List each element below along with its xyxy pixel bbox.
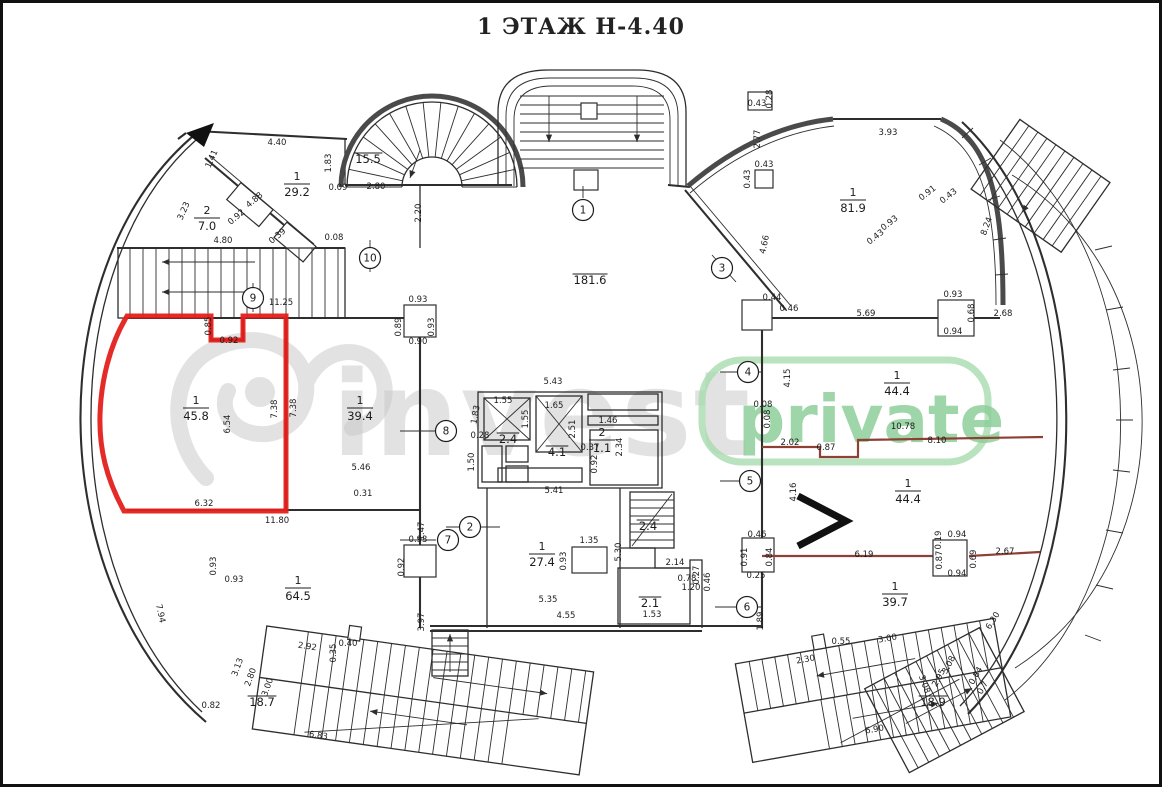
dimension-label: 0.91 (740, 548, 750, 567)
dimension-label: 0.46 (703, 573, 713, 592)
dimension-label: 8.10 (928, 436, 947, 446)
svg-text:7.0: 7.0 (198, 219, 216, 233)
axis-marker: 3 (712, 258, 733, 279)
dimension-label: 0.85 (204, 317, 214, 336)
dimension-label: 7.38 (270, 400, 280, 419)
dimension-label: 5.41 (545, 486, 564, 496)
svg-text:1: 1 (892, 580, 899, 593)
svg-text:64.5: 64.5 (285, 589, 311, 603)
axis-marker: 1 (573, 200, 594, 221)
svg-text:27.4: 27.4 (529, 555, 555, 569)
svg-text:2: 2 (599, 426, 606, 439)
dimension-label: 0.43 (748, 99, 767, 109)
svg-text:18.7: 18.7 (249, 695, 275, 709)
room-label: 181.6 (573, 273, 608, 287)
dimension-label: 1.89 (756, 612, 766, 631)
dimension-label: 4.55 (557, 611, 576, 621)
svg-text:1: 1 (357, 394, 364, 407)
svg-text:39.4: 39.4 (347, 409, 373, 423)
svg-text:44.4: 44.4 (895, 492, 921, 506)
axis-marker: 7 (438, 530, 459, 551)
dimension-label: 0.92 (220, 336, 239, 346)
dimension-label: 0.08 (763, 410, 773, 429)
floor-plan-page: 1 ЭТАЖ Н-4.40 invest private (0, 0, 1162, 787)
svg-text:45.8: 45.8 (183, 409, 209, 423)
room-label: 18.7 (248, 695, 277, 709)
axis-marker: 8 (436, 421, 457, 442)
dimension-label: 4.15 (783, 369, 793, 388)
dimension-label: 10.78 (891, 422, 915, 432)
dimension-label: 6.19 (855, 550, 874, 560)
dimension-label: 0.94 (948, 569, 967, 579)
dimension-label: 0.92 (397, 558, 407, 577)
watermark-logo-text: invest (332, 345, 752, 483)
dimension-label: 0.87 (817, 443, 836, 453)
dimension-label: 4.80 (214, 236, 233, 246)
svg-text:81.9: 81.9 (840, 201, 866, 215)
dimension-label: 0.27 (692, 566, 702, 585)
dimension-label: 0.93 (427, 318, 437, 337)
dimension-label: 0.93 (409, 295, 428, 305)
svg-text:29.2: 29.2 (284, 185, 310, 199)
dimension-label: 0.93 (559, 552, 569, 571)
svg-text:15.5: 15.5 (355, 152, 381, 166)
dimension-label: 4.16 (789, 483, 799, 502)
dimension-label: 0.93 (409, 535, 428, 545)
svg-text:1: 1 (193, 394, 200, 407)
dimension-label: 0.94 (948, 530, 967, 540)
dimension-label: 3.97 (417, 613, 427, 632)
svg-text:1: 1 (850, 186, 857, 199)
dimension-label: 0.09 (329, 183, 348, 193)
dimension-label: 0.28 (471, 431, 490, 441)
dimension-label: 1.65 (545, 401, 564, 411)
dimension-label: 0.93 (944, 290, 963, 300)
svg-text:2.1: 2.1 (641, 596, 659, 610)
svg-text:181.6: 181.6 (574, 273, 607, 287)
room-label: 2.4 (637, 519, 660, 533)
svg-text:39.7: 39.7 (882, 595, 908, 609)
svg-text:4: 4 (745, 367, 752, 379)
dimension-label: 0.94 (944, 327, 963, 337)
svg-text:5: 5 (747, 476, 754, 488)
dimension-label: 1.50 (467, 453, 477, 472)
dimension-label: 1.55 (494, 396, 513, 406)
dimension-label: 1.35 (580, 536, 599, 546)
dimension-label: 0.92 (590, 455, 600, 474)
dimension-label: 1.46 (599, 416, 618, 426)
room-label: 2.4 (497, 432, 520, 446)
dimension-label: 2.77 (753, 130, 763, 149)
svg-text:2: 2 (467, 522, 474, 534)
dimension-label: 7.38 (289, 399, 299, 418)
dimension-label: 2.68 (994, 309, 1013, 319)
dimension-label: 0.08 (754, 400, 773, 410)
svg-text:18.9: 18.9 (920, 695, 946, 709)
dimension-label: 2.51 (568, 420, 578, 439)
floor-plan-drawing: 1 ЭТАЖ Н-4.40 invest private (0, 0, 1162, 787)
svg-text:1: 1 (539, 540, 546, 553)
dimension-label: 0.35 (329, 644, 339, 663)
axis-marker: 10 (360, 248, 381, 269)
svg-text:7: 7 (445, 535, 452, 547)
dimension-label: 0.28 (765, 90, 775, 109)
dimension-label: 0.25 (747, 571, 766, 581)
axis-marker: 9 (243, 288, 264, 309)
dimension-label: 0.90 (409, 337, 428, 347)
dimension-label: 5.43 (544, 377, 563, 387)
dimension-label: 0.69 (969, 550, 979, 569)
axis-marker: 5 (740, 471, 761, 492)
dimension-label: 0.89 (394, 318, 404, 337)
room-label: 4.1 (546, 445, 569, 459)
dimension-label: 0.46 (748, 530, 767, 540)
axis-marker: 2 (460, 517, 481, 538)
svg-text:1.1: 1.1 (593, 441, 611, 455)
svg-text:2.4: 2.4 (639, 519, 657, 533)
dimension-label: 0.19 (934, 531, 944, 550)
dimension-label: 1.20 (682, 583, 701, 593)
dimension-label: 6.54 (223, 415, 233, 434)
svg-text:8: 8 (443, 426, 450, 438)
svg-text:44.4: 44.4 (884, 384, 910, 398)
dimension-label: 1.53 (643, 610, 662, 620)
dimension-label: 5.69 (857, 309, 876, 319)
svg-text:1: 1 (294, 170, 301, 183)
dimension-label: 11.25 (269, 298, 293, 308)
svg-text:9: 9 (250, 293, 257, 305)
dimension-label: 0.43 (743, 170, 753, 189)
dimension-label: 0.40 (339, 639, 358, 649)
svg-text:2.4: 2.4 (499, 432, 517, 446)
dimension-label: 2.20 (414, 204, 424, 223)
svg-text:1: 1 (295, 574, 302, 587)
dimension-label: 5.30 (614, 543, 624, 562)
svg-text:10: 10 (363, 253, 376, 265)
dimension-label: 0.87 (935, 551, 945, 570)
dimension-label: 0.43 (755, 160, 774, 170)
dimension-label: 0.68 (967, 304, 977, 323)
dimension-label: 0.55 (832, 637, 851, 647)
svg-text:1: 1 (580, 205, 587, 217)
room-label: 2.1 (639, 596, 662, 610)
dimension-label: 2.67 (996, 547, 1015, 557)
svg-text:1: 1 (894, 369, 901, 382)
dimension-label: 0.93 (209, 557, 219, 576)
dimension-label: 0.82 (202, 701, 221, 711)
dimension-label: 1.55 (521, 410, 531, 429)
svg-text:4.1: 4.1 (548, 445, 566, 459)
dimension-label: 1.83 (324, 154, 334, 173)
svg-text:6: 6 (744, 602, 751, 614)
dimension-label: 2.14 (666, 558, 685, 568)
dimension-label: 0.31 (354, 489, 373, 499)
dimension-label: 0.44 (763, 293, 782, 303)
dimension-label: 11.80 (265, 516, 289, 526)
dimension-label: 2.34 (615, 438, 625, 457)
room-label: 15.5 (354, 152, 383, 166)
dimension-label: 0.46 (780, 304, 799, 314)
axis-marker: 4 (738, 362, 759, 383)
axis-marker: 6 (737, 597, 758, 618)
page-title: 1 ЭТАЖ Н-4.40 (477, 14, 685, 40)
dimension-label: 0.08 (325, 233, 344, 243)
dimension-label: 0.84 (765, 548, 775, 567)
dimension-label: 5.35 (539, 595, 558, 605)
dimension-label: 3.93 (879, 128, 898, 138)
dimension-label: 0.93 (225, 575, 244, 585)
svg-text:2: 2 (204, 204, 211, 217)
dimension-label: 6.32 (195, 499, 214, 509)
dimension-label: 4.40 (268, 138, 287, 148)
room-label: 18.9 (919, 695, 948, 709)
svg-text:3: 3 (719, 263, 726, 275)
dimension-label: 2.02 (781, 438, 800, 448)
svg-text:1: 1 (905, 477, 912, 490)
dimension-label: 5.46 (352, 463, 371, 473)
dimension-label: 2.80 (367, 182, 386, 192)
